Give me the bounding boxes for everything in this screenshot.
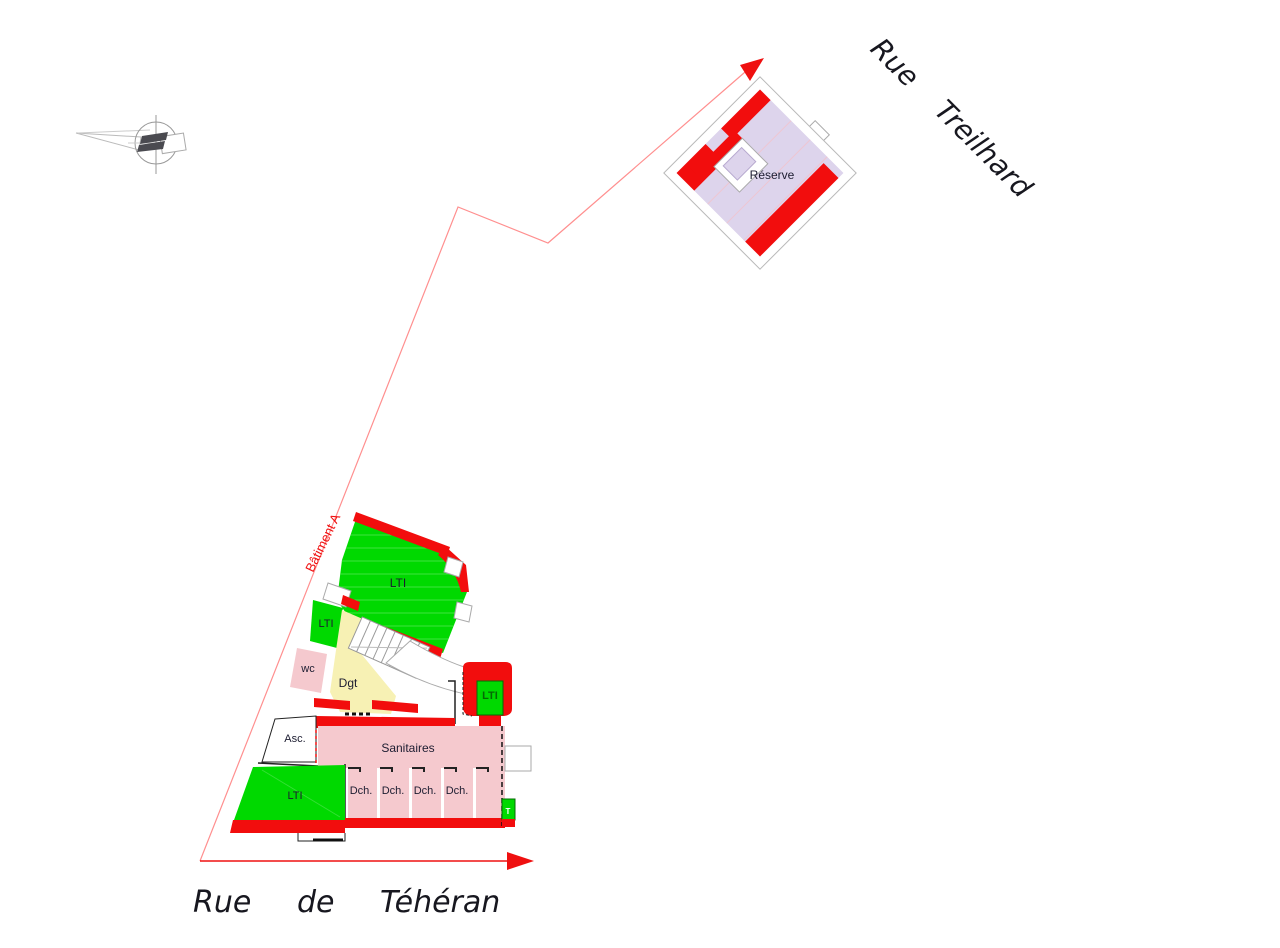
street-teheran-word2: de <box>297 885 335 920</box>
boundary-label: Bâtiment A <box>302 511 343 574</box>
label-t-small: T <box>506 807 511 816</box>
label-sanitaires: Sanitaires <box>381 741 434 755</box>
compass-icon <box>76 115 186 174</box>
street-treilhard-word2: Treilhard <box>928 94 1039 205</box>
label-dch-3: Dch. <box>414 785 437 797</box>
arrow-right-icon <box>507 852 534 870</box>
plan-drawing: Bâtiment A Réserve <box>0 0 1280 948</box>
label-wc: wc <box>300 663 315 675</box>
street-teheran-word3: Téhéran <box>380 885 500 920</box>
label-dch-4: Dch. <box>446 785 469 797</box>
label-asc: Asc. <box>284 733 305 745</box>
site-plan: Bâtiment A Réserve <box>0 0 1280 948</box>
label-dch-2: Dch. <box>382 785 405 797</box>
side-bay <box>505 746 531 771</box>
main-building <box>230 512 531 841</box>
label-lti-main: LTI <box>390 576 406 590</box>
street-treilhard-word1: Rue <box>864 32 926 94</box>
annex-room-label: Réserve <box>750 168 795 182</box>
label-lti-small: LTI <box>318 618 333 630</box>
label-dgt: Dgt <box>339 676 358 690</box>
label-lti-bottom: LTI <box>287 790 302 802</box>
label-dch-1: Dch. <box>350 785 373 797</box>
label-lti-right: LTI <box>482 690 498 702</box>
street-teheran-word1: Rue <box>193 885 251 920</box>
